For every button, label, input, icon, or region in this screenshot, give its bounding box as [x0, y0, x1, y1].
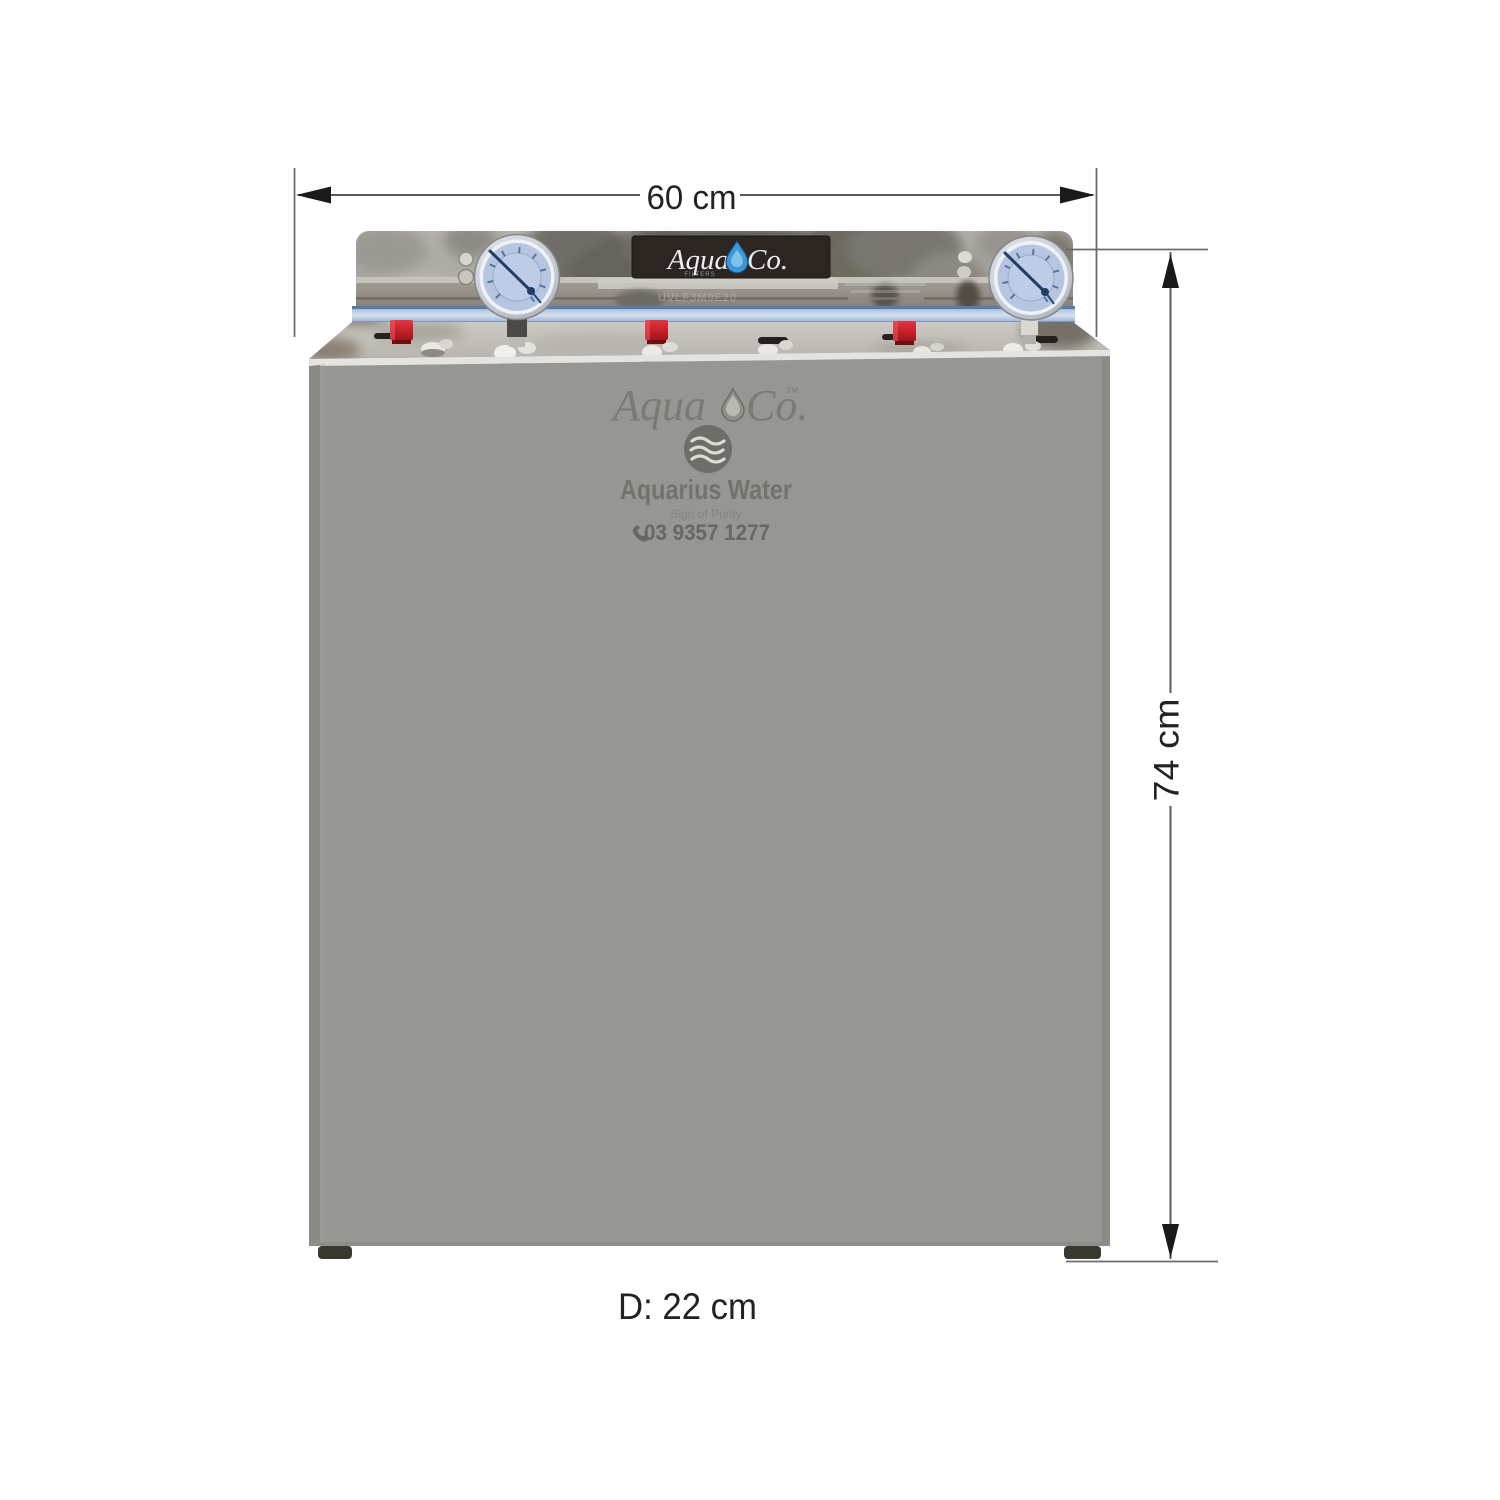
- svg-text:Co.: Co.: [747, 244, 788, 276]
- svg-text:D: 22 cm: D: 22 cm: [618, 1286, 757, 1327]
- svg-text:Aqua: Aqua: [610, 381, 706, 430]
- svg-text:74 cm: 74 cm: [1148, 699, 1187, 802]
- svg-text:Aquarius Water: Aquarius Water: [620, 474, 792, 505]
- svg-text:FILTERS: FILTERS: [684, 272, 715, 278]
- svg-text:UVLF3M9E20: UVLF3M9E20: [658, 292, 737, 304]
- svg-text:Sign of Purity: Sign of Purity: [670, 507, 741, 521]
- svg-text:03 9357 1277: 03 9357 1277: [644, 520, 770, 545]
- svg-text:Co.: Co.: [746, 381, 808, 430]
- svg-text:60 cm: 60 cm: [647, 179, 737, 217]
- svg-text:™: ™: [786, 384, 799, 399]
